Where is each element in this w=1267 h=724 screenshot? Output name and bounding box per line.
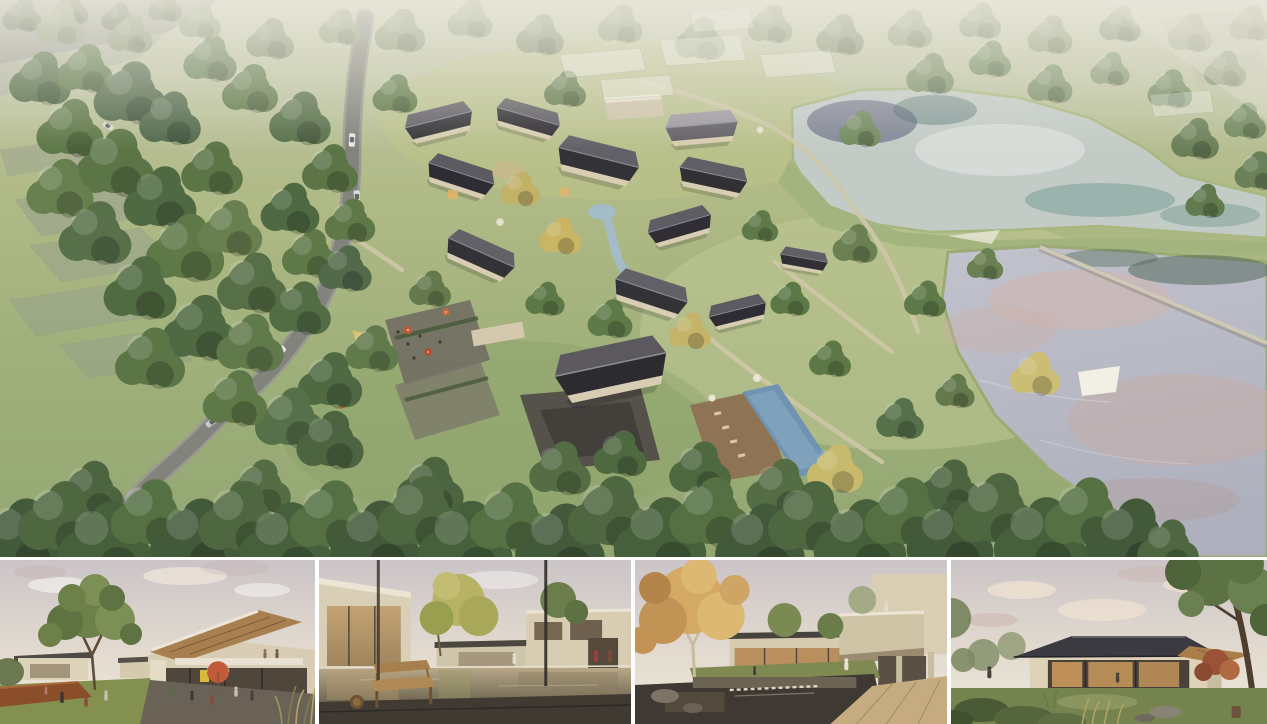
garden-tree xyxy=(768,603,802,637)
garden-tree xyxy=(848,586,876,614)
pond-courtyard-scene xyxy=(319,560,631,724)
distant-tree xyxy=(951,648,975,672)
aerial-scene xyxy=(0,0,1267,557)
waterfall-courtyard-scene xyxy=(635,560,947,724)
garden-tree xyxy=(817,613,843,639)
thumb-street-plaza xyxy=(0,560,315,724)
tree-stump xyxy=(1232,706,1241,718)
hero-aerial-render xyxy=(0,0,1267,557)
rock xyxy=(1135,714,1155,722)
render-board xyxy=(0,0,1267,724)
window-mullion xyxy=(377,560,380,680)
visitor xyxy=(753,666,756,675)
thumb-garden-pavilion xyxy=(951,560,1267,724)
thumb-waterfall-courtyard xyxy=(635,560,947,724)
rock xyxy=(683,703,703,713)
street-plaza-scene xyxy=(0,560,315,724)
visitor xyxy=(844,658,848,670)
thumbnail-row xyxy=(0,560,1267,724)
garden-pavilion-scene xyxy=(951,560,1267,724)
thumb-pond-courtyard xyxy=(319,560,631,724)
visitor xyxy=(987,666,991,678)
visitor xyxy=(608,650,612,662)
haze-overlay xyxy=(0,0,1267,150)
visitor xyxy=(594,650,598,662)
rock xyxy=(651,689,679,703)
visitor xyxy=(513,653,517,664)
window-mullion xyxy=(544,560,547,686)
